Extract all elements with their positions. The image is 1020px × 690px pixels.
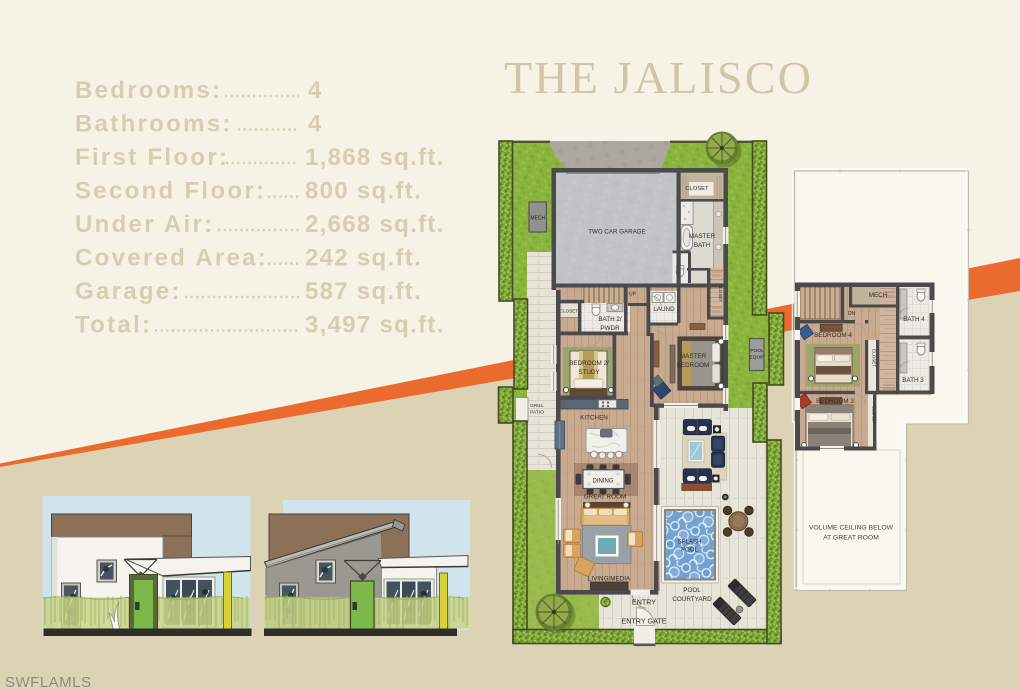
svg-text:COURTYARD: COURTYARD bbox=[672, 596, 712, 603]
svg-text:ENTRY GATE: ENTRY GATE bbox=[621, 617, 666, 626]
svg-text:THE JALISCO: THE JALISCO bbox=[504, 52, 813, 103]
svg-text:CLOSET: CLOSET bbox=[871, 406, 876, 425]
svg-text:PWDR: PWDR bbox=[600, 325, 620, 332]
svg-text:MASTER: MASTER bbox=[689, 233, 716, 240]
svg-text:TWO CAR GARAGE: TWO CAR GARAGE bbox=[588, 229, 645, 236]
svg-text:GRILL: GRILL bbox=[530, 403, 544, 409]
svg-text:3,497 sq.ft.: 3,497 sq.ft. bbox=[305, 312, 445, 339]
svg-text:First Floor:: First Floor: bbox=[75, 144, 229, 171]
svg-text:CLOSET: CLOSET bbox=[718, 284, 723, 303]
svg-text:BATH 3: BATH 3 bbox=[902, 377, 924, 384]
svg-text:CLOSET: CLOSET bbox=[871, 349, 876, 368]
svg-text:Second Floor:: Second Floor: bbox=[75, 178, 266, 205]
svg-text:800 sq.ft.: 800 sq.ft. bbox=[305, 178, 422, 205]
svg-text:Covered Area:: Covered Area: bbox=[75, 245, 268, 272]
svg-text:BATH 2/: BATH 2/ bbox=[598, 316, 622, 323]
svg-text:MASTER: MASTER bbox=[680, 353, 707, 360]
svg-text:LAUND: LAUND bbox=[653, 306, 675, 313]
svg-text:BEDROOM: BEDROOM bbox=[677, 362, 710, 369]
svg-text:MECH: MECH bbox=[530, 216, 545, 222]
svg-text:PATIO: PATIO bbox=[530, 410, 544, 416]
svg-text:KITCHEN: KITCHEN bbox=[580, 415, 608, 422]
svg-text:STUDY: STUDY bbox=[578, 369, 600, 376]
svg-text:SPLASH: SPLASH bbox=[678, 540, 702, 546]
svg-text:Garage:: Garage: bbox=[75, 278, 182, 305]
svg-text:VOLUME CEILING BELOW: VOLUME CEILING BELOW bbox=[809, 525, 894, 532]
svg-text:LIVING/MEDIA: LIVING/MEDIA bbox=[588, 576, 631, 583]
svg-text:BEDROOM 4: BEDROOM 4 bbox=[814, 332, 852, 339]
svg-text:POOL: POOL bbox=[681, 548, 698, 554]
svg-text:ENTRY: ENTRY bbox=[632, 598, 656, 607]
svg-text:DINING: DINING bbox=[593, 479, 614, 485]
svg-text:Total:: Total: bbox=[75, 312, 152, 339]
svg-text:587 sq.ft.: 587 sq.ft. bbox=[305, 278, 422, 305]
svg-text:CLOSET: CLOSET bbox=[685, 186, 709, 192]
svg-text:BEDROOM 2/: BEDROOM 2/ bbox=[569, 360, 609, 367]
svg-text:4: 4 bbox=[308, 77, 323, 104]
svg-text:POOL: POOL bbox=[683, 587, 701, 594]
svg-text:1,868 sq.ft.: 1,868 sq.ft. bbox=[305, 144, 445, 171]
svg-text:2,668 sq.ft.: 2,668 sq.ft. bbox=[305, 211, 445, 238]
svg-text:AT GREAT ROOM: AT GREAT ROOM bbox=[823, 535, 879, 542]
svg-text:UP: UP bbox=[629, 292, 637, 298]
svg-text:BATH: BATH bbox=[694, 242, 711, 249]
svg-text:Under Air:: Under Air: bbox=[75, 211, 214, 238]
svg-text:BATH 4: BATH 4 bbox=[903, 316, 925, 323]
svg-text:SWFLAMLS: SWFLAMLS bbox=[5, 674, 92, 690]
svg-text:242 sq.ft.: 242 sq.ft. bbox=[305, 245, 422, 272]
svg-text:DN: DN bbox=[848, 311, 856, 317]
svg-text:GREAT ROOM: GREAT ROOM bbox=[584, 494, 626, 501]
svg-text:POOL: POOL bbox=[750, 348, 764, 354]
svg-text:BEDROOM 3: BEDROOM 3 bbox=[816, 398, 854, 405]
svg-text:MECH: MECH bbox=[869, 292, 888, 299]
svg-text:CLOSET: CLOSET bbox=[560, 309, 579, 314]
svg-text:Bedrooms:: Bedrooms: bbox=[75, 77, 222, 104]
svg-text:4: 4 bbox=[308, 111, 323, 138]
svg-text:EQUIP: EQUIP bbox=[750, 355, 765, 361]
svg-text:Bathrooms:: Bathrooms: bbox=[75, 111, 233, 138]
